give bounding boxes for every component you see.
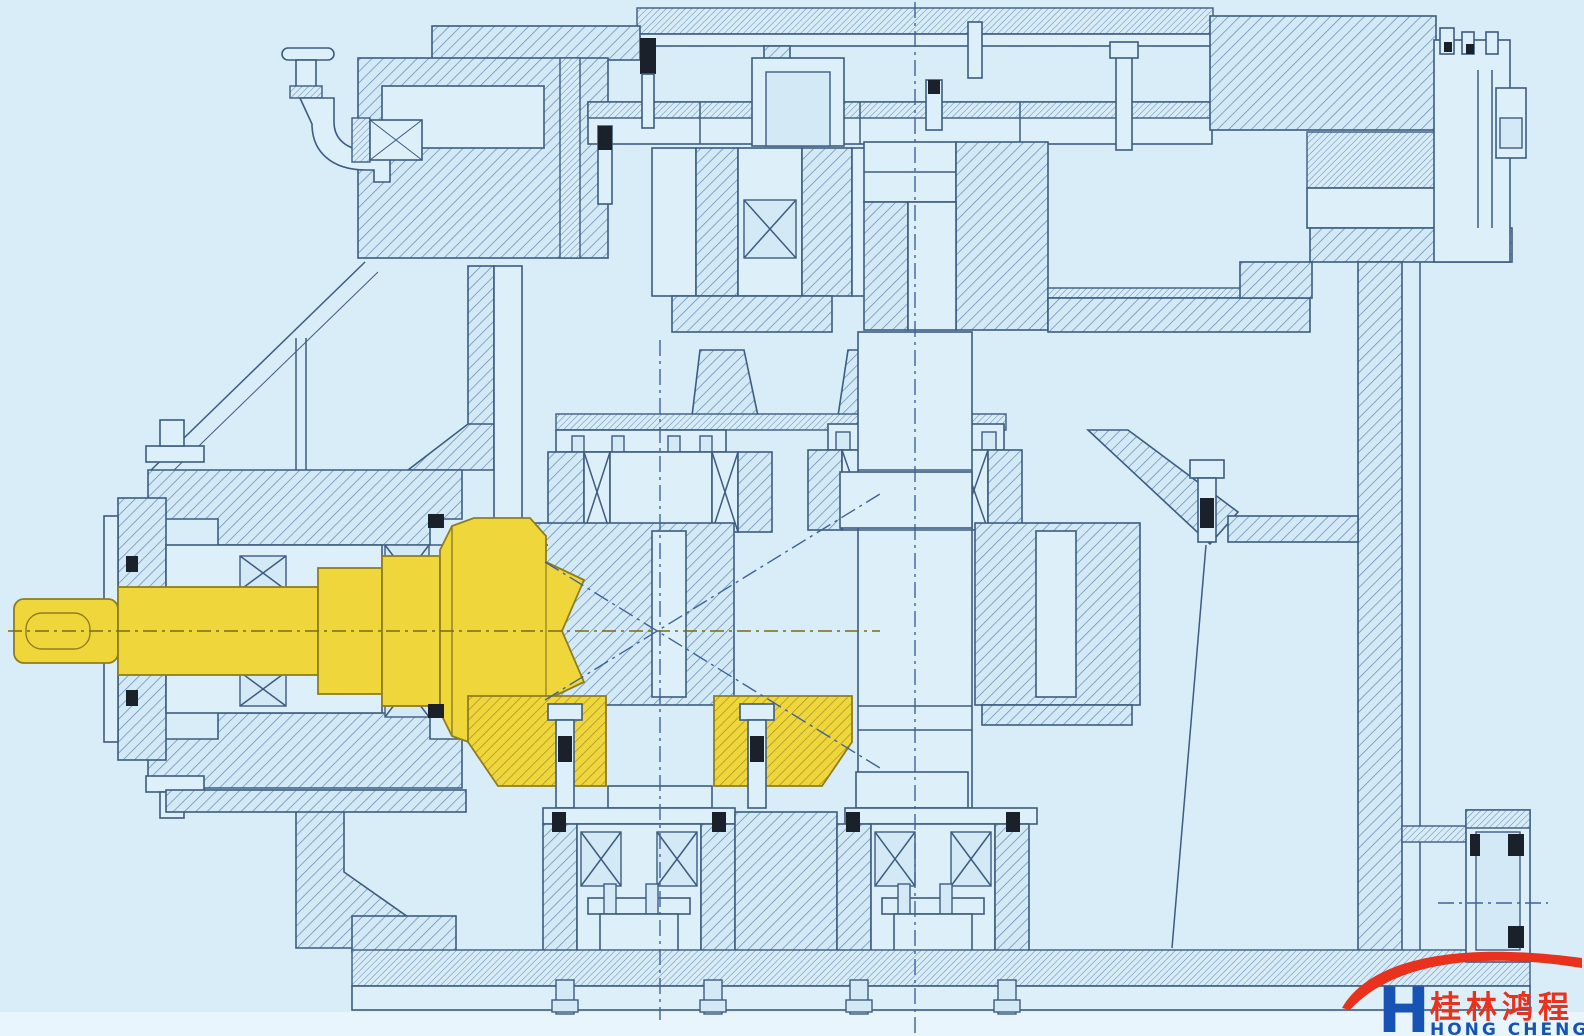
page-edge-strip bbox=[0, 1012, 1584, 1036]
right-output-fitting bbox=[1466, 810, 1530, 962]
top-flange-plate bbox=[637, 8, 1213, 34]
right-housing-column bbox=[1358, 262, 1402, 984]
logo-english-text: HONG CHENG bbox=[1430, 1020, 1584, 1036]
gearbox-cross-section-screenshot: H 桂林鸿程 HONG CHENG bbox=[0, 0, 1584, 1036]
gearbox-cross-section-drawing: H 桂林鸿程 HONG CHENG bbox=[0, 0, 1584, 1036]
vent-cap bbox=[282, 48, 334, 60]
logo-h-mark: H bbox=[1378, 974, 1430, 1036]
right-cover-block bbox=[1210, 16, 1436, 130]
right-shelf-arm bbox=[1048, 298, 1310, 332]
